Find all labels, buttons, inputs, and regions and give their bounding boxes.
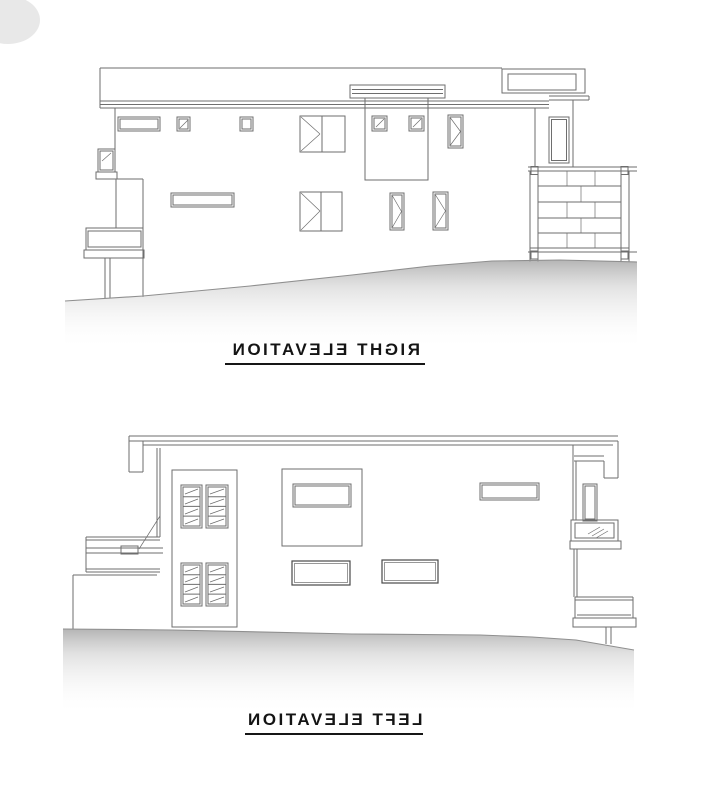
left-elevation-label: LEFT ELEVATION bbox=[245, 710, 423, 735]
center-tower bbox=[350, 85, 445, 180]
roof bbox=[100, 68, 589, 108]
ground-right bbox=[65, 260, 637, 350]
right-wing bbox=[570, 445, 636, 644]
bump-out-panel bbox=[282, 469, 362, 546]
right-elevation-drawing bbox=[65, 68, 637, 350]
left-wall-and-balcony bbox=[84, 108, 144, 298]
elevations-drawing bbox=[0, 0, 704, 800]
center-window bbox=[480, 483, 539, 500]
right-elevation-label-text: RIGHT ELEVATION bbox=[230, 340, 420, 359]
ground-left bbox=[63, 629, 634, 715]
right-elevation-label: RIGHT ELEVATION bbox=[225, 340, 425, 365]
elevation-sheet: RIGHT ELEVATION LEFT ELEVATION bbox=[0, 0, 704, 800]
stair-window-panel bbox=[172, 470, 237, 627]
roof bbox=[129, 436, 618, 478]
left-wall-and-balcony bbox=[73, 448, 163, 629]
left-elevation-drawing bbox=[63, 436, 636, 715]
scan-artifact bbox=[0, 0, 40, 44]
lower-windows bbox=[292, 560, 438, 585]
left-elevation-label-text: LEFT ELEVATION bbox=[246, 710, 423, 729]
right-wing-wall bbox=[535, 100, 573, 167]
lower-window-row bbox=[171, 192, 448, 231]
masonry-wall bbox=[528, 167, 637, 263]
